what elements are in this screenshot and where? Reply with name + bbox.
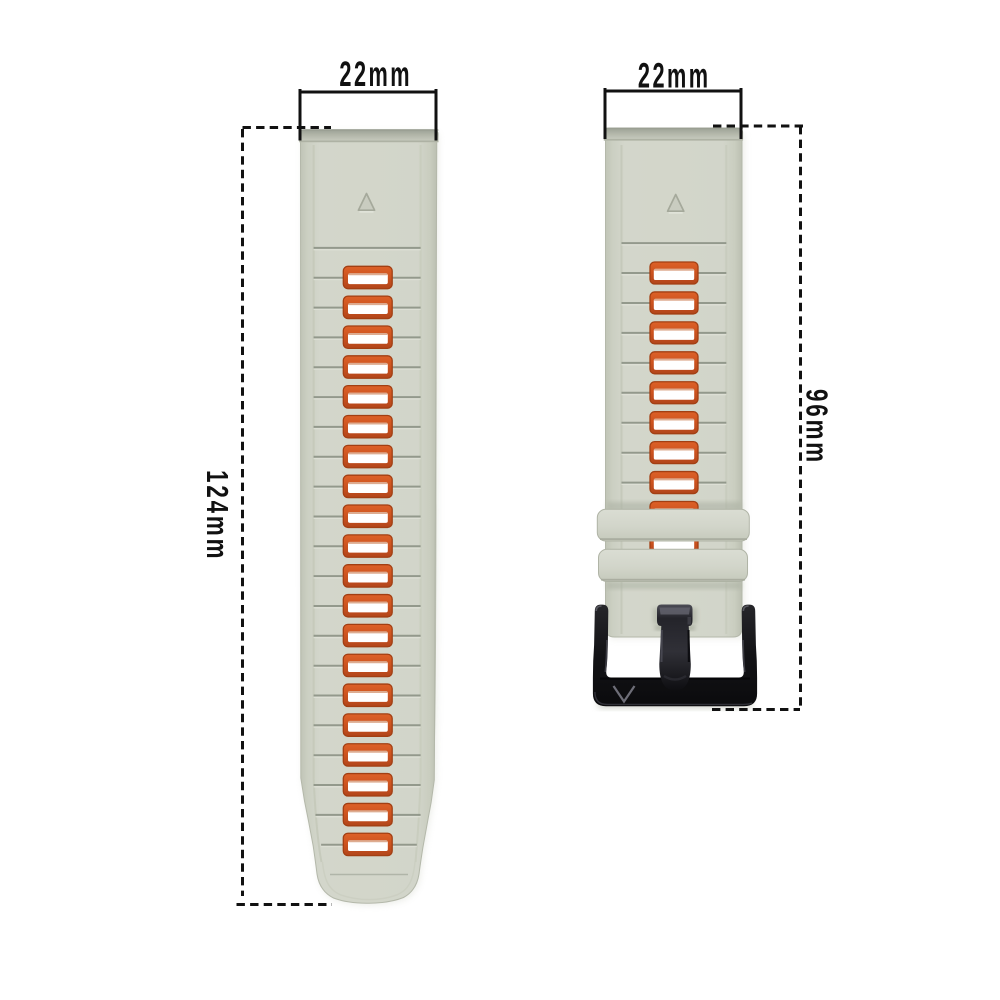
svg-text:22mm: 22mm xyxy=(638,57,711,95)
svg-text:96mm: 96mm xyxy=(800,389,834,465)
svg-text:124mm: 124mm xyxy=(200,470,234,561)
svg-text:22mm: 22mm xyxy=(339,56,412,94)
